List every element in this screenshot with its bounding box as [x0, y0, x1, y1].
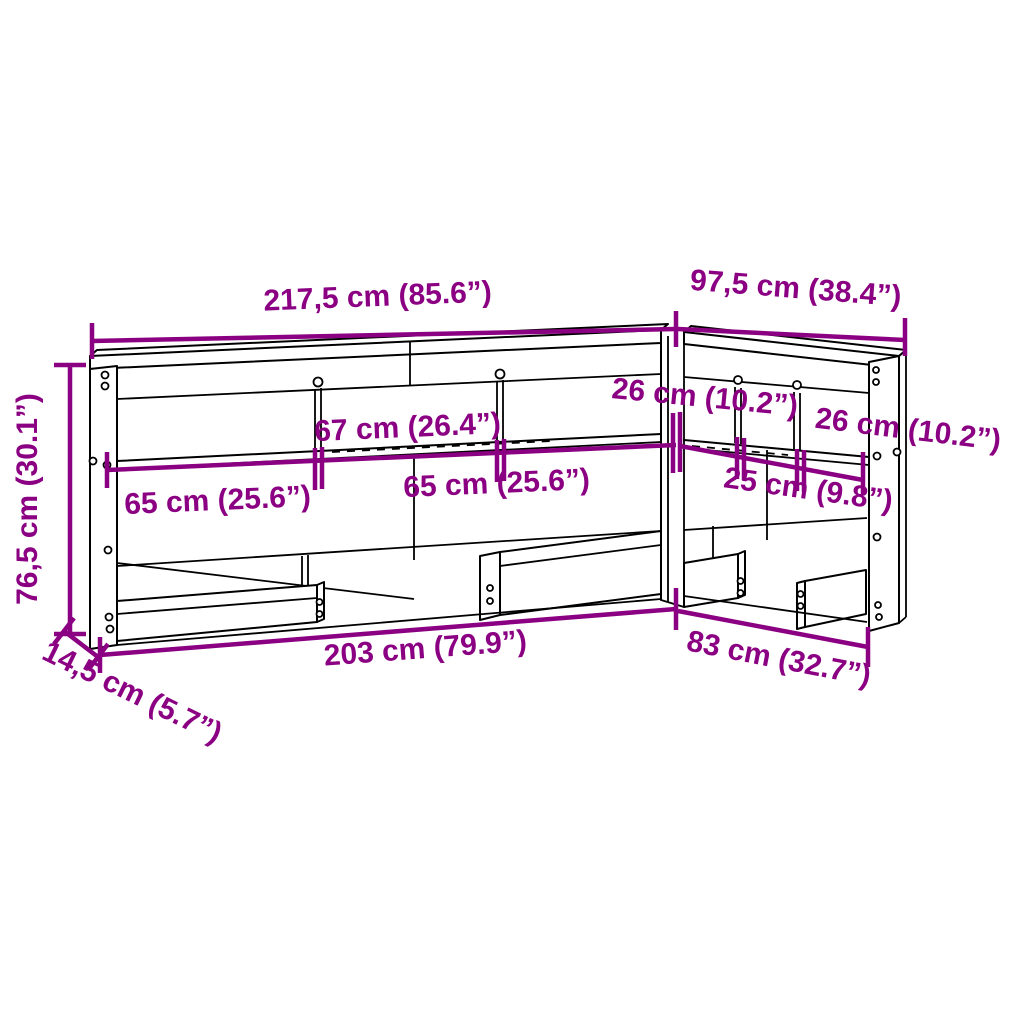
return-width-label: 97,5 cm (38.4”): [689, 264, 903, 314]
base-return-label: 83 cm (32.7”): [684, 625, 874, 693]
height-label: 76,5 cm (30.1”): [11, 393, 44, 605]
base-front-label: 203 cm (79.9”): [323, 624, 528, 672]
dim-height: 76,5 cm (30.1”): [11, 365, 86, 634]
front-width-label: 217,5 cm (85.6”): [263, 275, 493, 317]
dim-base-return: 83 cm (32.7”): [678, 611, 874, 693]
shelf-front-left-label: 65 cm (25.6”): [124, 480, 312, 521]
dimension-diagram-page: 217,5 cm (85.6”) 97,5 cm (38.4”) 76,5 cm…: [0, 0, 1024, 1024]
dimension-diagram: 217,5 cm (85.6”) 97,5 cm (38.4”) 76,5 cm…: [0, 0, 1024, 1024]
shelf-front-right-label: 65 cm (25.6”): [403, 463, 591, 504]
shelf-front-center-label: 67 cm (26.4”): [314, 407, 502, 448]
dim-inner-front: 65 cm (25.6”) 67 cm (26.4”) 65 cm (25.6”…: [107, 407, 680, 521]
shelf-return-last-label: 26 cm (10.2”): [813, 402, 1002, 458]
shelf-return-first-label: 26 cm (10.2”): [610, 372, 799, 423]
